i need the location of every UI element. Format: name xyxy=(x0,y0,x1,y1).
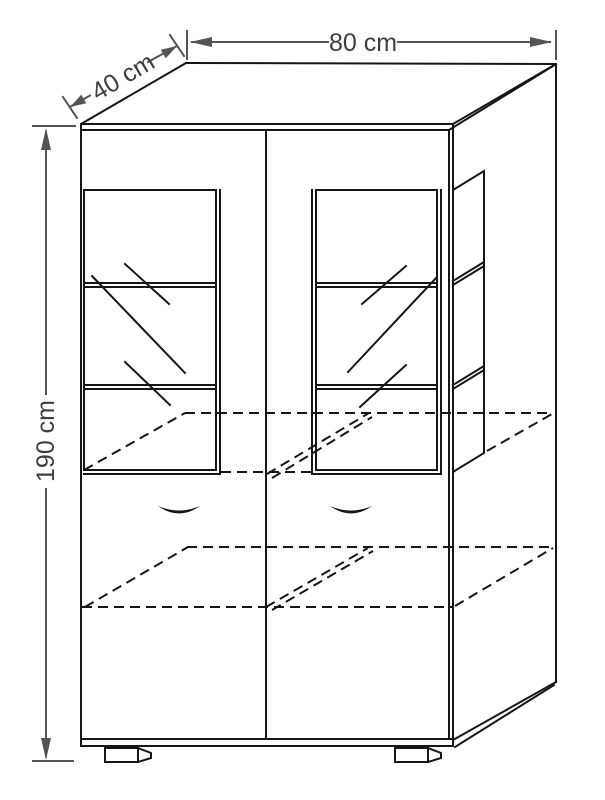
depth-dimension-label: 40 cm xyxy=(87,48,160,107)
diagram-canvas: 80 cm 40 cm 190 cm xyxy=(0,0,605,800)
lower-shelf-depth-line-right xyxy=(266,548,368,607)
left-foot xyxy=(105,748,151,762)
hidden-shelf-lines xyxy=(82,413,553,610)
right-glass-reflection-line xyxy=(362,266,406,304)
right-foot-front xyxy=(395,748,428,762)
cabinet-dimension-diagram: 80 cm 40 cm 190 cm xyxy=(0,0,605,800)
left-door-handle xyxy=(158,506,200,514)
height-dimension: 190 cm xyxy=(32,126,75,761)
side-shelf-upper xyxy=(453,262,484,285)
height-dimension-label: 190 cm xyxy=(32,400,60,482)
arrow-up-right-icon xyxy=(161,46,177,58)
arrow-left-icon xyxy=(190,37,212,47)
right-foot xyxy=(395,748,441,762)
width-dimension-label: 80 cm xyxy=(329,29,397,57)
side-shelf-lower xyxy=(453,366,484,389)
left-glass-reflection-line xyxy=(125,362,170,405)
right-shelf-lower xyxy=(316,385,437,389)
width-dimension: 80 cm xyxy=(187,29,556,59)
left-glass-panel xyxy=(84,190,216,470)
arrow-down-icon xyxy=(41,738,51,760)
left-glass-reflection-line xyxy=(92,276,185,373)
lower-shelf-depth-line-left xyxy=(85,547,188,607)
depth-dimension: 40 cm xyxy=(63,35,184,118)
side-glass-outline xyxy=(453,171,484,472)
arrow-down-left-icon xyxy=(70,95,86,107)
lower-shelf-depth-line-right xyxy=(272,551,373,610)
right-foot-side xyxy=(428,748,441,762)
lower-shelf-side-depth-line xyxy=(455,548,553,606)
top-face-back-edge xyxy=(186,63,556,64)
right-door xyxy=(312,190,441,514)
top-face-right-inner-edge xyxy=(449,66,553,130)
side-bottom-edge xyxy=(453,682,556,740)
side-glass-panel xyxy=(453,171,484,472)
display-floor-depth-line-left xyxy=(84,413,185,470)
right-glass-reflection-line xyxy=(348,278,436,372)
right-glass-panel xyxy=(316,190,437,470)
display-floor-depth-line-right xyxy=(267,413,369,474)
side-bottom-inner-edge xyxy=(455,685,554,747)
display-floor-side-depth-line xyxy=(487,414,552,451)
arrow-right-icon xyxy=(530,37,552,47)
arrow-up-icon xyxy=(41,128,51,150)
right-door-handle xyxy=(330,506,372,514)
left-door xyxy=(84,190,220,514)
right-shelf-upper xyxy=(316,283,437,287)
left-foot-side xyxy=(138,748,151,762)
display-floor-depth-line-right xyxy=(272,417,372,478)
left-foot-front xyxy=(105,748,138,762)
